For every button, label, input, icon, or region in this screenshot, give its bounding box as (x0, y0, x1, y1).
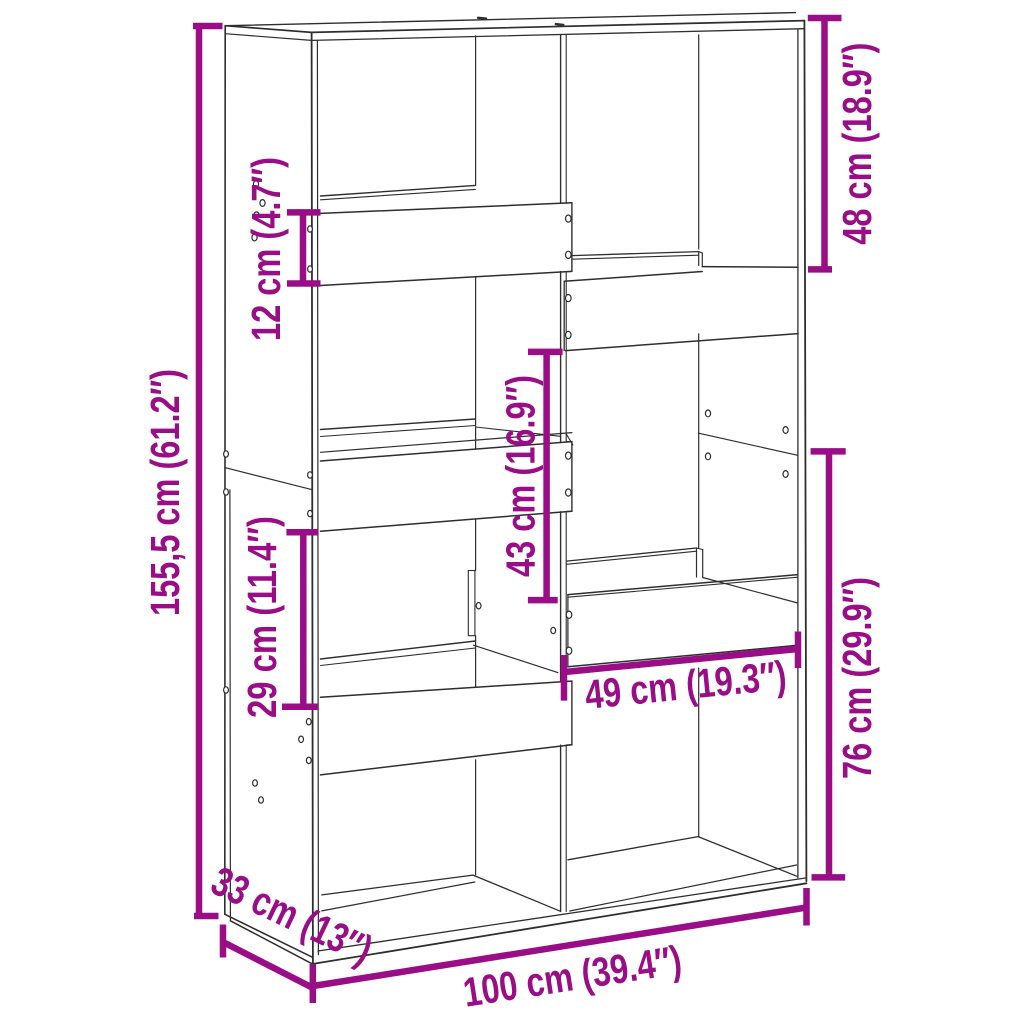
svg-text:48 cm (18.9″): 48 cm (18.9″) (834, 43, 880, 245)
svg-text:29 cm (11.4″): 29 cm (11.4″) (239, 516, 285, 718)
svg-text:12 cm (4.7″): 12 cm (4.7″) (243, 157, 289, 341)
svg-text:76 cm (29.9″): 76 cm (29.9″) (834, 577, 880, 779)
svg-text:155,5 cm (61.2″): 155,5 cm (61.2″) (142, 369, 188, 616)
svg-text:43 cm (16.9″): 43 cm (16.9″) (498, 375, 544, 577)
